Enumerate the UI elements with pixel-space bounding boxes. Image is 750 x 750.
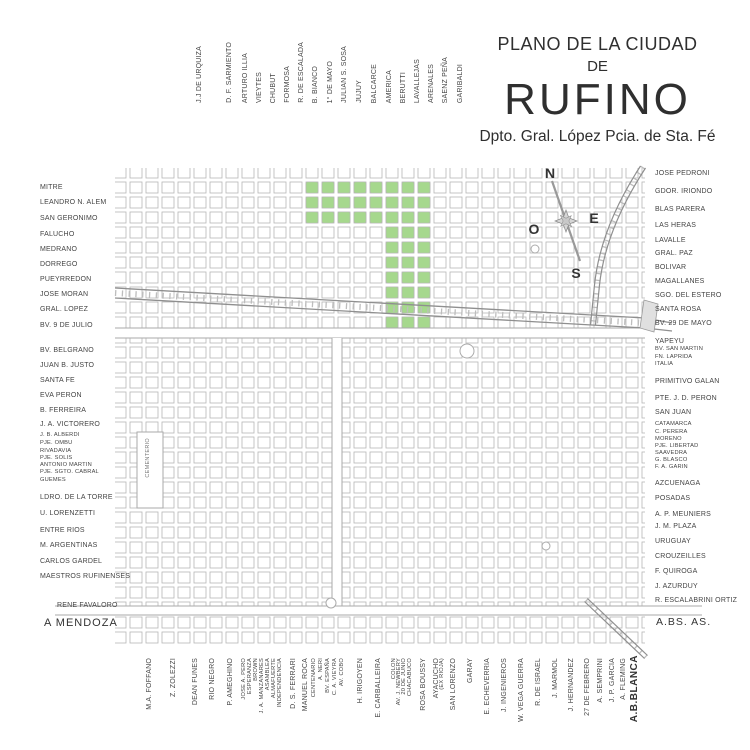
street-label: D. F. SARMIENTO [226,42,233,103]
street-label: POSADAS [655,495,690,502]
map-title-city-name: RUFINO [455,75,740,125]
street-label: PRIMITIVO GALAN [655,378,719,385]
highlighted-block [338,197,350,208]
street-label: JULIAN S. SOSA [341,46,348,103]
highlighted-block [354,182,366,193]
street-label: FN. LAPRIDA [655,355,692,361]
highlighted-block [418,197,430,208]
street-label: PJE. SOLIS [40,456,72,462]
highlighted-block [338,212,350,223]
city-blocks-grid [115,168,645,645]
highlighted-block [402,242,414,253]
street-label: B. FERREIRA [40,407,86,414]
street-label: B. BIANCO [312,66,319,103]
street-label: FORMOSA [284,66,291,103]
highlighted-block [354,212,366,223]
title-block: PLANO DE LA CIUDAD DE RUFINO Dpto. Gral.… [455,34,740,146]
map-title-subtitle: Dpto. Gral. López Pcia. de Sta. Fé [455,128,740,146]
street-label: J. P. GARCIA [609,658,616,702]
street-label: C. A. VIEYRA [333,658,339,695]
street-label: BV. SAN MARTIN [655,347,703,353]
highlighted-block [354,197,366,208]
compass-s: S [571,265,580,281]
map-title-line2: DE [455,58,740,75]
street-label: MAESTROS RUFINENSES [40,573,130,580]
street-label: GARAY [467,658,474,683]
street-label: E. CARBALLEIRA [375,658,382,718]
highlighted-block [370,182,382,193]
street-label: JUJUY [356,80,363,103]
street-label: JUAN B. JUSTO [40,362,94,369]
highlighted-block [402,287,414,298]
street-label: CATAMARCA [655,422,692,428]
street-label: PTE. J. D. PERON [655,395,717,402]
highlighted-block [322,212,334,223]
highlighted-block [402,317,414,328]
street-label: LEANDRO N. ALEM [40,199,106,206]
street-label: SAENZ PEÑA [442,57,449,103]
street-label: P. AMEGHINO [227,658,234,706]
compass-e: E [589,210,598,226]
street-label: RENE FAVALORO [57,602,118,609]
street-label: A. P. MEUNIERS [655,511,711,518]
street-label: PJE. SGTO. CABRAL [40,470,99,476]
highlighted-block [402,227,414,238]
street-label: ANTONIO MARTIN [40,463,92,469]
highlighted-block [370,197,382,208]
compass-o: O [529,221,540,237]
street-label: PUEYRREDON [40,276,91,283]
street-label: CARLOS GARDEL [40,558,102,565]
street-label: AZCUENAGA [655,480,700,487]
street-label: ARTURO ILLIA [242,53,249,103]
street-label: FALUCHO [40,231,74,238]
highlighted-block [418,287,430,298]
street-label: R. ESCALABRINI ORTIZ [655,597,737,604]
highlighted-block [418,182,430,193]
street-label: R. DE ISRAEL [535,658,542,706]
street-label: GDOR. IRIONDO [655,188,712,195]
highlighted-block [370,212,382,223]
highlighted-block [306,212,318,223]
street-label: J.J DE URQUIZA [196,46,203,103]
map-title-line1: PLANO DE LA CIUDAD [455,34,740,55]
street-label: J. HERNANDEZ [568,658,575,711]
street-label: J. INGENIEROS [501,658,508,712]
compass-n: N [545,165,555,181]
highlighted-block [418,257,430,268]
highlighted-block [306,197,318,208]
street-label: U. LORENZETTI [40,510,95,517]
highlighted-block [322,197,334,208]
highlighted-block [402,257,414,268]
street-label: JOSE MORAN [40,291,88,298]
street-label: BV. BELGRANO [40,347,94,354]
street-label: VIEYTES [256,72,263,103]
street-label: URUGUAY [655,538,691,545]
highlighted-block [418,212,430,223]
street-label: BV. 9 DE JULIO [40,322,93,329]
street-label: MITRE [40,184,63,191]
highlighted-block [386,212,398,223]
street-label: SAN LORENZO [450,658,457,710]
street-label: CHACABUCO [408,658,414,696]
highlighted-block [418,242,430,253]
highlighted-block [386,287,398,298]
street-label: RIO NEGRO [209,658,216,700]
street-label: F. A. GARIN [655,465,688,471]
street-label: AV. COBO [340,658,346,686]
highlighted-block [386,317,398,328]
street-label: R. DE ESCALADA [298,42,305,103]
street-label: 1° DE MAYO [327,61,334,103]
highlighted-block [322,182,334,193]
highlighted-block [418,227,430,238]
street-label: LAVALLE [655,237,686,244]
highlighted-block [402,182,414,193]
highlighted-block [386,197,398,208]
rufino-city-map-page: N E O S PLANO DE LA CIUDAD DE RUFINO Dpt… [0,0,750,750]
street-label: LAVALLEJAS [414,59,421,103]
street-label: C. PERERA [655,430,687,436]
highlighted-block [338,182,350,193]
street-label: GRAL. LOPEZ [40,306,88,313]
street-label: PJE. LIBERTAD [655,444,698,450]
street-label: YAPEYU [655,338,684,345]
street-label: E. ECHEVERRIA [484,658,491,715]
street-label: ITALIA [655,362,673,368]
street-label: (EX RIOJA) [440,658,446,690]
highlighted-block [386,182,398,193]
highlighted-block [386,257,398,268]
street-label: SAN GERONIMO [40,215,98,222]
street-label: PJE. OMBU [40,441,72,447]
highlighted-block [402,272,414,283]
street-label: INDEPENDENCIA [278,658,284,707]
street-label: MORENO [655,437,682,443]
street-label: MAGALLANES [655,278,704,285]
street-label: A. FLEMING [620,658,627,700]
street-label: GARIBALDI [457,64,464,103]
street-label: JOSE PEDRONI [655,170,710,177]
street-label: M. ARGENTINAS [40,542,97,549]
street-label: MEDRANO [40,246,77,253]
street-label: BERUTTI [400,72,407,103]
street-label: H. IRIGOYEN [357,658,364,703]
street-label: CHUBUT [270,73,277,103]
street-label: GRAL. PAZ [655,250,693,257]
street-label: G. BLASCO [655,458,687,464]
street-label: LAS HERAS [655,222,696,229]
street-label: AMERICA [386,70,393,103]
highlighted-block [386,242,398,253]
highlighted-block [402,212,414,223]
highlighted-block [418,317,430,328]
street-label: 27 DE FEBRERO [584,658,591,716]
street-label: D. S. FERRARI [290,658,297,709]
street-label: ENTRE RIOS [40,527,85,534]
street-label: SANTA FE [40,377,75,384]
street-label: J. B. ALBERDI [40,433,80,439]
highlighted-block [386,227,398,238]
cemetery-label: CEMENTERIO [145,438,151,478]
highlighted-block [418,272,430,283]
exit-west-label: A MENDOZA [44,617,118,629]
street-label: EVA PERON [40,392,82,399]
street-label: CROUZEILLES [655,553,706,560]
street-label: J. A. VICTORERO [40,421,100,428]
street-label: J. AZURDUY [655,583,698,590]
street-label: BLAS PARERA [655,206,705,213]
street-label: SANTA ROSA [655,306,701,313]
exit-south-label: A.B.BLANCA [629,655,640,722]
street-label: SAN JUAN [655,409,691,416]
street-label: LDRO. DE LA TORRE [40,494,113,501]
street-label: SAAVEDRA [655,451,687,457]
street-label: DORREGO [40,261,78,268]
highlighted-block [306,182,318,193]
street-label: W. VEGA GUERRA [518,658,525,722]
street-label: BALCARCE [371,64,378,103]
street-label: GUEMES [40,478,66,484]
street-label: F. QUIROGA [655,568,697,575]
street-label: J. MARMOL [552,658,559,698]
highlighted-block [402,197,414,208]
street-label: ARENALES [428,64,435,103]
street-label: Z. ZOLEZZI [170,658,177,697]
street-label: MANUEL ROCA [302,658,309,711]
street-label: SGO. DEL ESTERO [655,292,722,299]
highlighted-block [386,272,398,283]
street-label: ROSA BOUSSY [420,658,427,711]
exit-east-label: A.BS. AS. [656,616,711,628]
street-label: DEAN FUNES [192,658,199,705]
street-label: BOLIVAR [655,264,686,271]
street-label: BV. 29 DE MAYO [655,320,712,327]
street-label: J. M. PLAZA [655,523,697,530]
street-label: BV. ESPAÑA [326,658,332,693]
street-label: A. SEMPRINI [597,658,604,703]
street-label: RIVADAVIA [40,449,71,455]
street-label: CENTENARIO [312,658,318,697]
street-label: M.A. FOFFANO [146,658,153,710]
